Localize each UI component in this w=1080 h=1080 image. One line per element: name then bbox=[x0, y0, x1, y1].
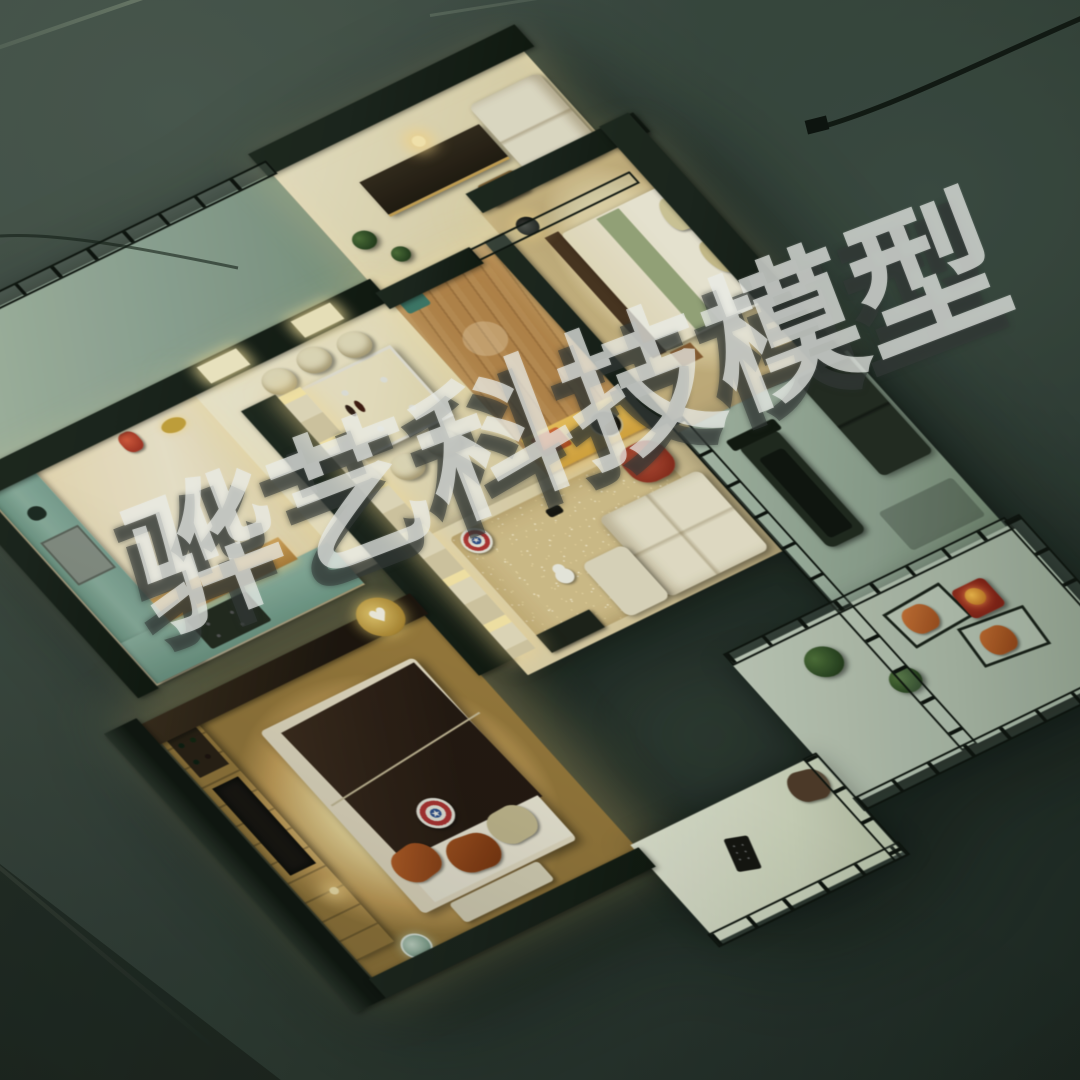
photo-canvas: ★ ★ bbox=[0, 0, 1080, 1080]
power-cable bbox=[0, 0, 1080, 1080]
